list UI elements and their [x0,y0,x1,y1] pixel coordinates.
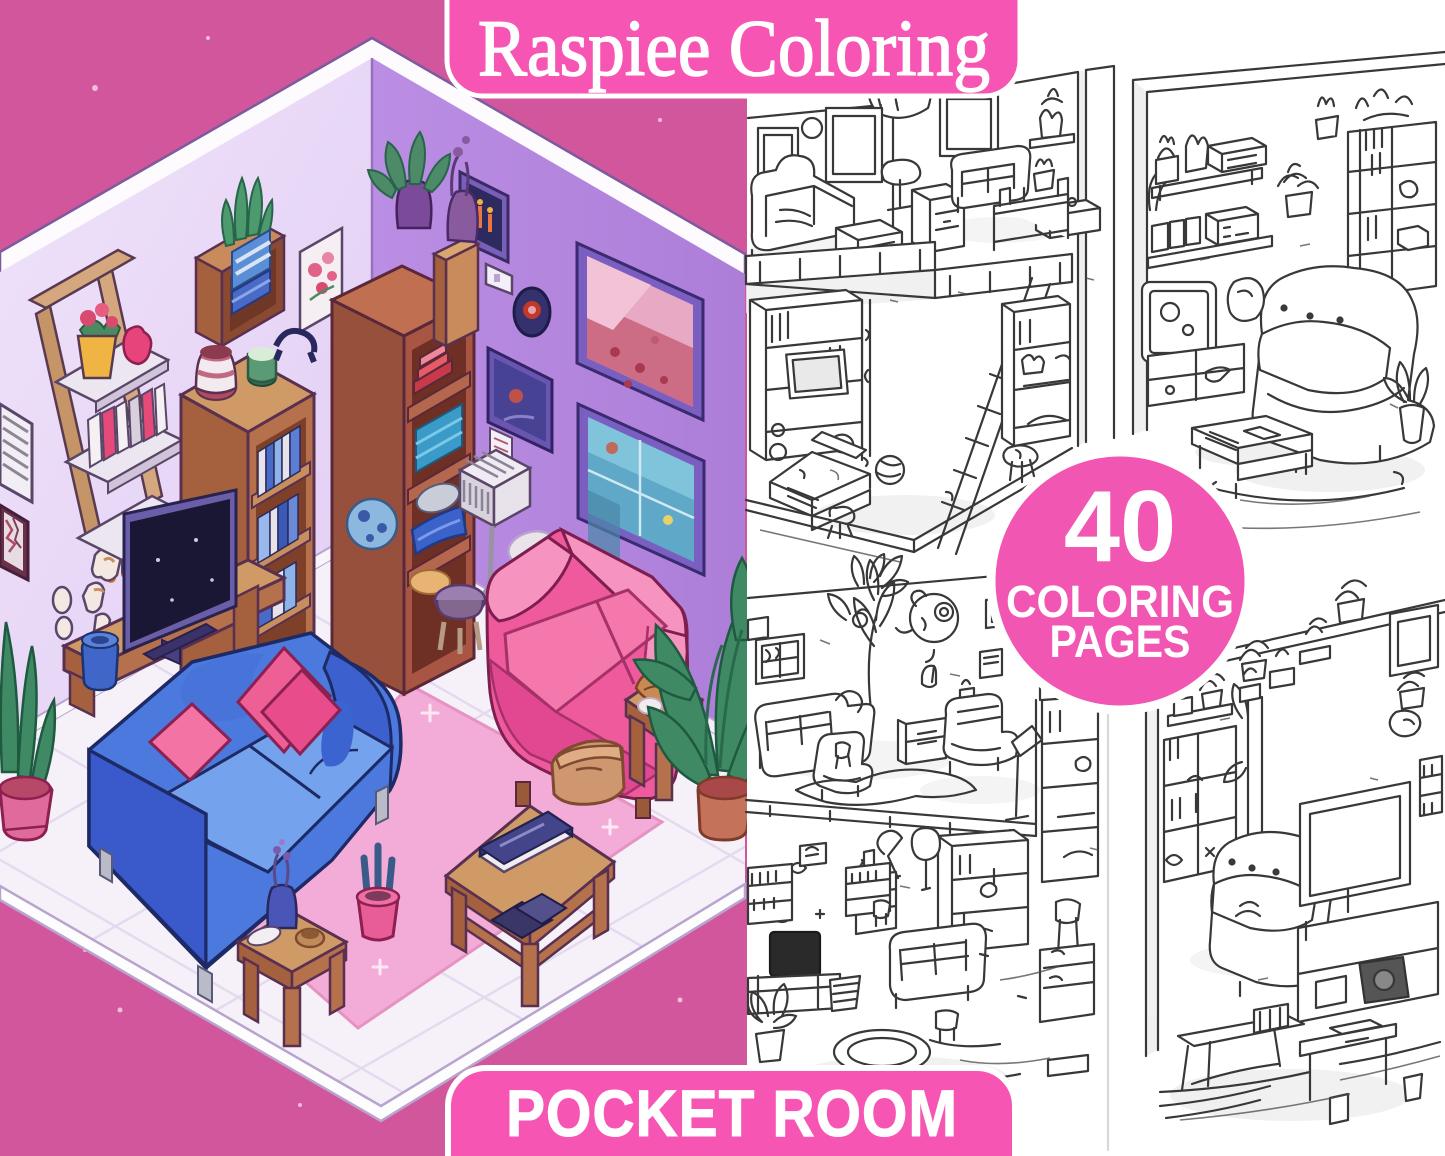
svg-text:POCKET ROOM: POCKET ROOM [506,1076,958,1150]
svg-text:Raspiee Coloring: Raspiee Coloring [478,5,990,93]
svg-text:40: 40 [1064,471,1176,583]
svg-text:PAGES: PAGES [1050,616,1191,667]
